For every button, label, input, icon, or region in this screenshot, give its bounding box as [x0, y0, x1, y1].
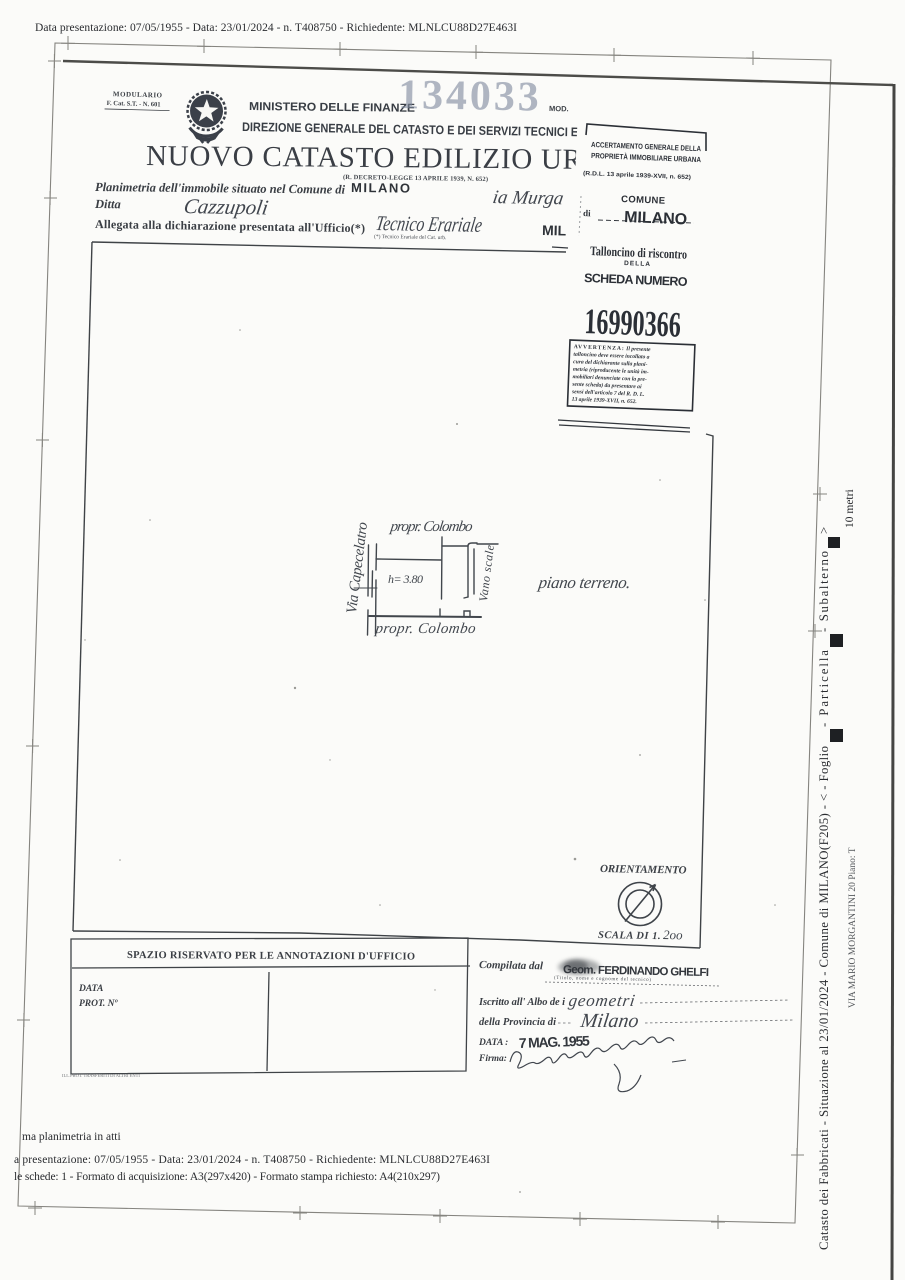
svg-text:(*) Tecnico Erariale del Cat: (*) Tecnico Erariale del Cat. urb. — [374, 233, 447, 241]
svg-text:propr. Colombo: propr. Colombo — [373, 621, 477, 637]
svg-text:DELLA: DELLA — [624, 260, 651, 268]
svg-text:NUOVO CATASTO EDILIZIO URB: NUOVO CATASTO EDILIZIO URB — [146, 140, 606, 176]
svg-text:COMUNE: COMUNE — [621, 194, 665, 207]
svg-text:Data presentazione: 07/05/1955: Data presentazione: 07/05/1955 - Data: 2… — [35, 22, 517, 34]
svg-text:ORIENTAMENTO: ORIENTAMENTO — [600, 863, 688, 877]
svg-text:propr. Colombo: propr. Colombo — [388, 519, 474, 535]
svg-text:Compilata dal: Compilata dal — [479, 959, 544, 972]
svg-text:MINISTERO DELLE FINANZE: MINISTERO DELLE FINANZE — [249, 101, 415, 115]
svg-text:10 metri: 10 metri — [844, 489, 856, 528]
svg-text:Catasto dei Fabbricati - Situa: Catasto dei Fabbricati - Situazione al 2… — [817, 746, 831, 1250]
svg-text:DATA: DATA — [78, 984, 103, 994]
svg-text:SPAZIO RISERVATO PER LE ANNOTA: SPAZIO RISERVATO PER LE ANNOTAZIONI D'UF… — [127, 950, 415, 963]
svg-text:VIA MARIO MORGANTINI 20 Pia: VIA MARIO MORGANTINI 20 Piano: T — [848, 847, 858, 1008]
svg-text:Ditta: Ditta — [94, 197, 121, 211]
svg-text:134033: 134033 — [398, 72, 541, 120]
svg-text:PROT. Nº: PROT. Nº — [79, 999, 119, 1009]
svg-text:ma planimetria in atti: ma planimetria in atti — [22, 1131, 121, 1143]
svg-text:2oo: 2oo — [663, 927, 683, 942]
svg-text:MODULARIO: MODULARIO — [113, 90, 163, 99]
svg-text:- Subalterno: - Subalterno — [817, 551, 831, 632]
svg-text:della Provincia di: della Provincia di — [479, 1017, 556, 1028]
svg-text:- Particella: - Particella — [817, 650, 831, 727]
svg-text:Cazzupoli: Cazzupoli — [182, 194, 270, 219]
svg-text:MIL: MIL — [542, 222, 567, 239]
svg-text:a presentazione: 07/05/1955 -: a presentazione: 07/05/1955 - Data: 23/0… — [14, 1154, 490, 1166]
svg-text:ILL.PROT. TRASFERITI DI ALTRI: ILL.PROT. TRASFERITI DI ALTRI ENTI — [62, 1073, 140, 1078]
svg-text:h= 3.80: h= 3.80 — [388, 572, 423, 586]
svg-text:16990366: 16990366 — [584, 301, 682, 345]
svg-text:Iscritto all' Albo de i: Iscritto all' Albo de i — [478, 997, 565, 1008]
svg-text:MOD.: MOD. — [549, 104, 569, 113]
svg-text:MILANO: MILANO — [624, 209, 688, 228]
svg-text:Firma:: Firma: — [478, 1054, 507, 1064]
svg-text:DATA :: DATA : — [478, 1038, 508, 1048]
svg-text:piano terreno.: piano terreno. — [536, 573, 632, 592]
svg-text:Tecnico Erariale: Tecnico Erariale — [374, 211, 484, 237]
svg-text:>: > — [817, 527, 831, 534]
svg-text:le schede: 1 - Formato di acqu: le schede: 1 - Formato di acquisizione: … — [14, 1171, 440, 1183]
svg-text:geometri: geometri — [567, 991, 636, 1010]
svg-text:F. Cat. S.T. - N. 601: F. Cat. S.T. - N. 601 — [107, 100, 161, 108]
svg-text:7 MAG. 1955: 7 MAG. 1955 — [519, 1033, 591, 1051]
svg-text:Milano: Milano — [578, 1010, 640, 1032]
svg-text:ia Murga: ia Murga — [491, 187, 565, 209]
svg-text:di: di — [583, 208, 591, 218]
svg-text:SCALA DI 1.: SCALA DI 1. — [598, 930, 661, 942]
svg-text:MILANO: MILANO — [351, 180, 410, 196]
